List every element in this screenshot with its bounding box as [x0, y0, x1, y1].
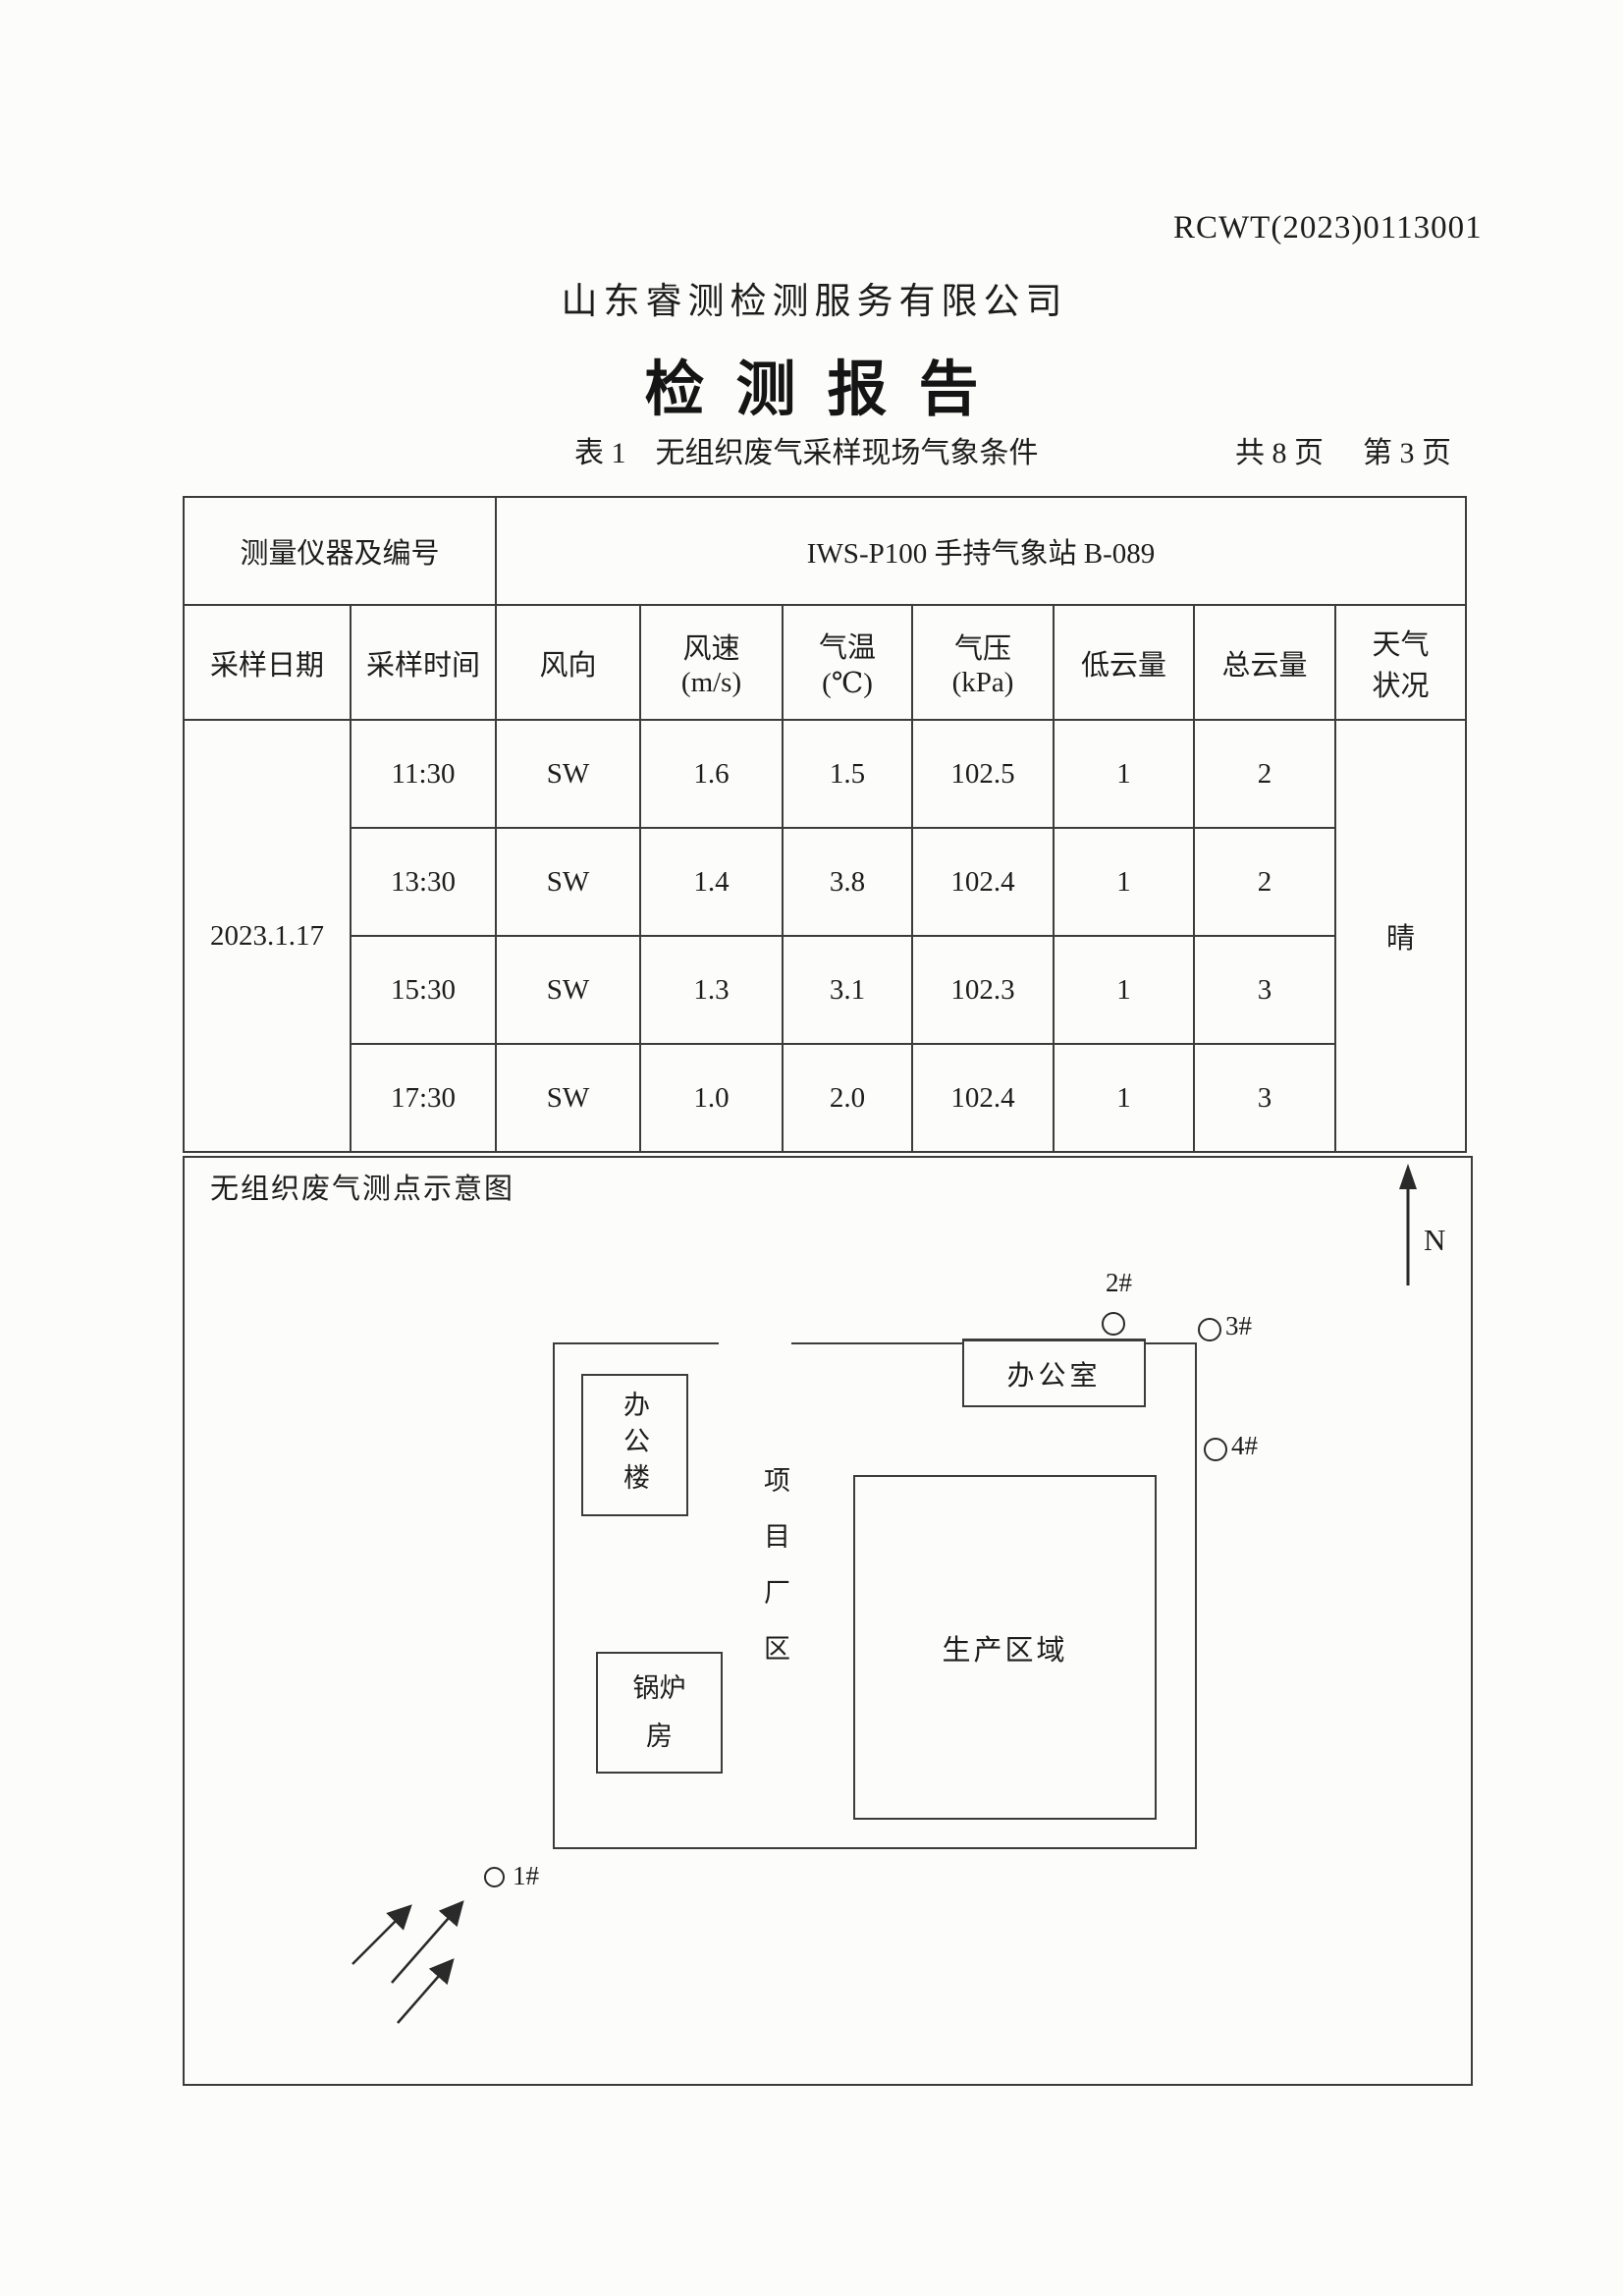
cell-total-cloud: 3 [1194, 936, 1335, 1044]
factory-gate-gap [719, 1340, 791, 1347]
cell-low-cloud: 1 [1054, 720, 1194, 828]
cell-sampling-date: 2023.1.17 [184, 720, 351, 1152]
sampling-point-3-label: 3# [1225, 1311, 1252, 1341]
cell-time: 11:30 [351, 720, 496, 828]
cell-temperature: 2.0 [783, 1044, 912, 1152]
sampling-points-diagram-panel: 无组织废气测点示意图 N 办公楼 办公室 锅炉 房 生产区域 项目厂区 1# 2… [183, 1156, 1473, 2086]
site-label: 项目厂区 [756, 1466, 794, 1690]
cell-pressure: 102.3 [912, 936, 1054, 1044]
cell-low-cloud: 1 [1054, 936, 1194, 1044]
table-caption-row: 表 1 无组织废气采样现场气象条件 共 8 页 第 3 页 [0, 428, 1623, 469]
cell-wind-speed: 1.0 [640, 1044, 783, 1152]
office-building-box: 办公楼 [581, 1374, 688, 1516]
cell-temperature: 3.8 [783, 828, 912, 936]
cell-wind-speed: 1.6 [640, 720, 783, 828]
col-header-date: 采样日期 [184, 605, 351, 720]
cell-low-cloud: 1 [1054, 828, 1194, 936]
instrument-value-cell: IWS-P100 手持气象站 B-089 [496, 497, 1466, 605]
report-title: 检测报告 [0, 340, 1623, 427]
diagram-caption: 无组织废气测点示意图 [210, 1166, 514, 1207]
col-header-time: 采样时间 [351, 605, 496, 720]
production-area-box: 生产区域 [853, 1475, 1157, 1820]
sampling-point-1-label: 1# [513, 1861, 539, 1891]
cell-pressure: 102.4 [912, 1044, 1054, 1152]
sampling-point-4-label: 4# [1231, 1431, 1258, 1461]
col-header-wind-direction: 风向 [496, 605, 640, 720]
cell-time: 15:30 [351, 936, 496, 1044]
cell-wind-direction: SW [496, 720, 640, 828]
sampling-point-1-marker [484, 1867, 505, 1887]
boiler-room-label: 锅炉 房 [633, 1665, 686, 1760]
table-row: 2023.1.17 11:30 SW 1.6 1.5 102.5 1 2 晴 [184, 720, 1466, 828]
table-row: 测量仪器及编号 IWS-P100 手持气象站 B-089 [184, 497, 1466, 605]
cell-time: 17:30 [351, 1044, 496, 1152]
col-header-wind-speed: 风速 (m/s) [640, 605, 783, 720]
cell-temperature: 3.1 [783, 936, 912, 1044]
cell-pressure: 102.4 [912, 828, 1054, 936]
cell-wind-direction: SW [496, 1044, 640, 1152]
sampling-point-4-marker [1204, 1438, 1227, 1461]
company-name: 山东睿测检测服务有限公司 [0, 271, 1623, 324]
col-header-pressure: 气压 (kPa) [912, 605, 1054, 720]
office-room-label: 办公室 [1006, 1354, 1101, 1394]
cell-total-cloud: 2 [1194, 828, 1335, 936]
cell-wind-direction: SW [496, 936, 640, 1044]
table-row: 15:30 SW 1.3 3.1 102.3 1 3 [184, 936, 1466, 1044]
cell-total-cloud: 3 [1194, 1044, 1335, 1152]
table-row: 17:30 SW 1.0 2.0 102.4 1 3 [184, 1044, 1466, 1152]
weather-conditions-table: 测量仪器及编号 IWS-P100 手持气象站 B-089 采样日期 采样时间 风… [183, 496, 1467, 1153]
cell-low-cloud: 1 [1054, 1044, 1194, 1152]
sampling-point-2-marker [1102, 1312, 1125, 1336]
col-header-low-cloud: 低云量 [1054, 605, 1194, 720]
page-info: 共 8 页 第 3 页 [1235, 428, 1451, 471]
report-number: RCWT(2023)0113001 [1173, 210, 1483, 246]
instrument-label-cell: 测量仪器及编号 [184, 497, 496, 605]
cell-time: 13:30 [351, 828, 496, 936]
cell-wind-speed: 1.4 [640, 828, 783, 936]
north-label: N [1424, 1223, 1445, 1258]
office-building-label: 办公楼 [616, 1391, 654, 1500]
col-header-temperature: 气温 (℃) [783, 605, 912, 720]
office-room-box: 办公室 [962, 1339, 1146, 1407]
wind-arrows-icon [342, 1889, 479, 2037]
page-total: 共 8 页 [1235, 428, 1324, 471]
sampling-point-2-label: 2# [1106, 1268, 1132, 1298]
boiler-room-box: 锅炉 房 [596, 1652, 723, 1774]
table-row: 13:30 SW 1.4 3.8 102.4 1 2 [184, 828, 1466, 936]
page-current: 第 3 页 [1363, 428, 1451, 471]
col-header-total-cloud: 总云量 [1194, 605, 1335, 720]
sampling-point-3-marker [1198, 1318, 1221, 1341]
cell-temperature: 1.5 [783, 720, 912, 828]
cell-wind-speed: 1.3 [640, 936, 783, 1044]
cell-total-cloud: 2 [1194, 720, 1335, 828]
production-area-label: 生产区域 [942, 1627, 1067, 1668]
cell-pressure: 102.5 [912, 720, 1054, 828]
table-header-row: 采样日期 采样时间 风向 风速 (m/s) 气温 (℃) 气压 (kPa) 低云… [184, 605, 1466, 720]
table-caption: 表 1 无组织废气采样现场气象条件 [574, 428, 1039, 471]
cell-wind-direction: SW [496, 828, 640, 936]
cell-weather: 晴 [1335, 720, 1466, 1152]
col-header-weather: 天气 状况 [1335, 605, 1466, 720]
